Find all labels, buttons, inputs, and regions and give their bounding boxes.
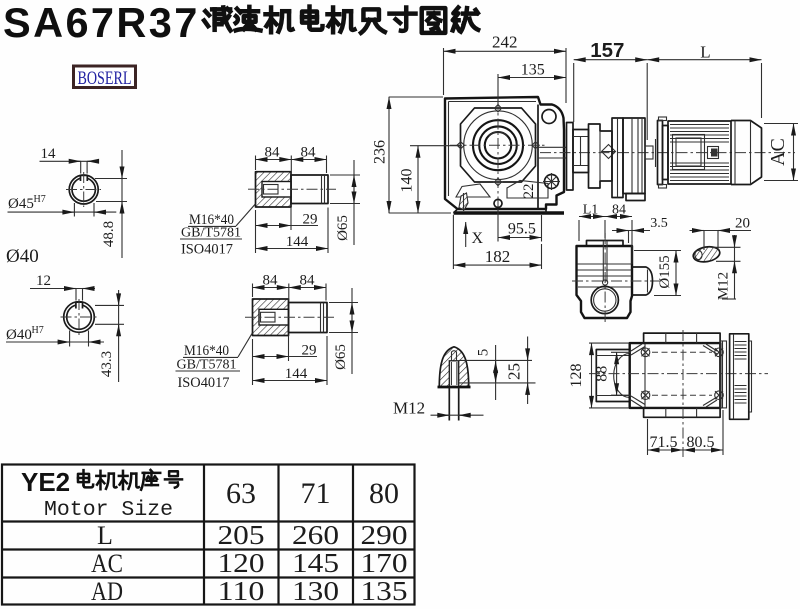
svg-text:290: 290 xyxy=(361,520,408,550)
svg-text:AC: AC xyxy=(767,138,789,166)
svg-text:48.8: 48.8 xyxy=(101,221,117,247)
svg-text:29: 29 xyxy=(303,212,318,228)
svg-text:AD: AD xyxy=(91,577,123,606)
svg-text:144: 144 xyxy=(285,366,308,382)
svg-text:ISO4017: ISO4017 xyxy=(178,375,230,391)
svg-text:L1: L1 xyxy=(583,203,599,218)
svg-text:29: 29 xyxy=(302,343,317,359)
svg-text:20: 20 xyxy=(735,216,750,232)
svg-text:71: 71 xyxy=(301,477,331,510)
svg-text:242: 242 xyxy=(492,33,518,52)
svg-text:L: L xyxy=(97,521,113,550)
svg-text:3.5: 3.5 xyxy=(650,216,668,231)
svg-text:205: 205 xyxy=(218,520,265,550)
svg-text:157: 157 xyxy=(590,39,624,62)
svg-text:182: 182 xyxy=(485,247,511,266)
svg-text:22: 22 xyxy=(521,184,537,199)
svg-text:95.5: 95.5 xyxy=(508,221,536,238)
svg-text:12: 12 xyxy=(36,273,51,289)
svg-text:SA67R37: SA67R37 xyxy=(3,0,200,46)
svg-text:Ø65: Ø65 xyxy=(333,344,349,370)
svg-text:L: L xyxy=(700,43,710,62)
svg-text:Ø40: Ø40 xyxy=(6,327,32,343)
svg-text:80: 80 xyxy=(369,477,399,510)
svg-text:14: 14 xyxy=(41,146,57,162)
svg-text:Motor Size: Motor Size xyxy=(44,498,173,522)
svg-text:84: 84 xyxy=(300,273,316,289)
svg-text:80.5: 80.5 xyxy=(687,434,715,451)
svg-text:X: X xyxy=(472,230,484,247)
svg-text:63: 63 xyxy=(226,477,256,510)
svg-text:Ø65: Ø65 xyxy=(335,215,351,241)
svg-text:84: 84 xyxy=(265,145,281,161)
svg-text:43.3: 43.3 xyxy=(99,351,115,377)
svg-text:5: 5 xyxy=(476,349,492,357)
svg-text:25: 25 xyxy=(505,363,524,380)
svg-text:H7: H7 xyxy=(34,194,46,205)
svg-text:145: 145 xyxy=(292,548,339,578)
svg-text:Ø155: Ø155 xyxy=(657,255,673,288)
svg-text:84: 84 xyxy=(301,145,317,161)
svg-text:BOSERL: BOSERL xyxy=(78,68,132,89)
svg-text:M12: M12 xyxy=(393,399,425,418)
svg-text:88: 88 xyxy=(594,366,611,382)
svg-text:ISO4017: ISO4017 xyxy=(181,242,233,258)
svg-text:135: 135 xyxy=(521,62,545,79)
svg-text:GB/T5781: GB/T5781 xyxy=(177,358,237,373)
svg-text:GB/T5781: GB/T5781 xyxy=(181,226,241,241)
svg-text:140: 140 xyxy=(399,169,416,193)
svg-text:Ø40: Ø40 xyxy=(6,246,39,267)
svg-text:AC: AC xyxy=(91,549,123,578)
svg-text:144: 144 xyxy=(286,234,309,250)
svg-text:84: 84 xyxy=(263,273,279,289)
svg-text:M12: M12 xyxy=(716,272,732,300)
svg-text:236: 236 xyxy=(372,140,389,164)
svg-text:170: 170 xyxy=(361,548,408,578)
svg-text:135: 135 xyxy=(361,576,408,606)
svg-text:260: 260 xyxy=(292,520,339,550)
svg-text:Ø45: Ø45 xyxy=(8,196,34,212)
svg-text:110: 110 xyxy=(218,576,265,606)
svg-text:YE2: YE2 xyxy=(21,467,70,497)
svg-text:71.5: 71.5 xyxy=(650,434,678,451)
svg-text:128: 128 xyxy=(568,364,585,388)
svg-text:H7: H7 xyxy=(32,325,44,336)
svg-text:120: 120 xyxy=(218,548,265,578)
svg-text:84: 84 xyxy=(612,203,626,218)
svg-text:130: 130 xyxy=(292,576,339,606)
